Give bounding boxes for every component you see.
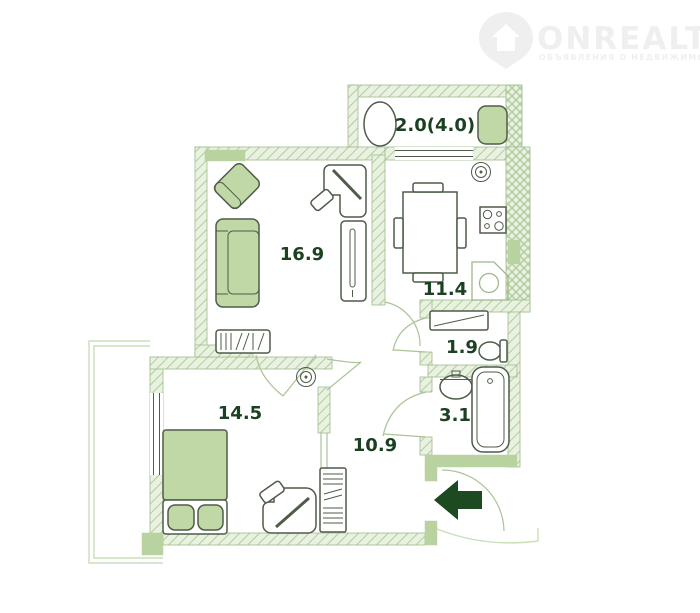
wall-solid — [508, 240, 520, 264]
wall-solid — [425, 455, 517, 467]
wall — [163, 533, 425, 545]
room-wc: 1.9 — [430, 311, 507, 362]
sofa-icon — [216, 219, 259, 307]
room-kitchen: 11.4 — [394, 163, 508, 301]
bath-area-label: 3.1 — [439, 405, 471, 426]
logo-tagline-text: ОБЪЯВЛЕНИЯ О НЕДВИЖИМОСТИ — [539, 53, 700, 62]
toilet-icon — [479, 340, 507, 362]
tv-stand-icon — [216, 330, 270, 353]
kitchen-door — [385, 302, 420, 346]
wall-solid — [425, 467, 437, 481]
double-bed-icon — [163, 430, 227, 534]
wall — [348, 85, 520, 97]
bath-door — [383, 392, 426, 437]
wall — [348, 85, 358, 147]
onrealt-logo: ONREALT ОБЪЯВЛЕНИЯ О НЕДВИЖИМОСТИ — [479, 12, 700, 69]
onrealt-pin-icon — [479, 12, 533, 69]
wall — [508, 300, 520, 467]
wc-door — [393, 318, 426, 352]
dining-table-icon — [394, 183, 466, 282]
wall — [420, 352, 432, 365]
desk-icon — [310, 165, 366, 217]
wall — [372, 155, 385, 305]
balcony-table-icon — [364, 102, 396, 146]
stove-icon — [480, 207, 506, 233]
armchair-icon — [212, 161, 261, 210]
balcony-area-label: 2.0(4.0) — [395, 115, 475, 136]
wall — [420, 437, 432, 455]
wall — [420, 377, 432, 392]
kitchen-area-label: 11.4 — [423, 279, 467, 300]
bedroom-desk-icon — [259, 480, 316, 533]
bedroom-lamp-icon — [297, 368, 316, 387]
pillow-icon — [168, 505, 194, 530]
room-bedroom: 14.5 — [163, 368, 316, 535]
wall-solid — [425, 521, 437, 545]
hall-area-label: 10.9 — [353, 435, 397, 456]
hall-wardrobe-icon — [320, 468, 346, 532]
wall — [506, 147, 530, 312]
room-hall: 10.9 — [320, 435, 397, 532]
wall — [420, 300, 530, 312]
corner-sink-icon — [472, 262, 508, 300]
ceiling-lamp-icon — [472, 163, 491, 182]
bathtub-icon — [472, 367, 509, 452]
kitchen-window-icon — [395, 147, 473, 160]
dining-chair-icon — [413, 183, 443, 192]
dining-chair-icon — [394, 218, 403, 248]
room-living: 16.9 — [212, 161, 366, 353]
wall-solid — [205, 150, 245, 161]
wall — [318, 387, 330, 433]
balcony-chair-icon — [478, 106, 507, 144]
bedroom-window-icon — [150, 393, 163, 475]
floorplan-page: ONREALT ОБЪЯВЛЕНИЯ О НЕДВИЖИМОСТИ — [0, 0, 700, 613]
entrance-arrow-icon — [434, 480, 482, 520]
floorplan-canvas: ONREALT ОБЪЯВЛЕНИЯ О НЕДВИЖИМОСТИ — [0, 0, 700, 613]
stairwell-contour — [437, 528, 538, 543]
wall-solid — [142, 533, 163, 555]
logo-brand-text: ONREALT — [537, 21, 700, 57]
pillow-icon — [198, 505, 223, 530]
bedroom-area-label: 14.5 — [218, 403, 262, 424]
living-area-label: 16.9 — [280, 244, 324, 265]
room-bath: 3.1 — [439, 367, 509, 452]
dining-chair-icon — [457, 218, 466, 248]
wc-area-label: 1.9 — [446, 337, 478, 358]
room-balcony: 2.0(4.0) — [364, 102, 507, 146]
wall — [195, 147, 207, 357]
wardrobe-icon — [341, 221, 366, 301]
shelf-icon — [430, 311, 488, 330]
